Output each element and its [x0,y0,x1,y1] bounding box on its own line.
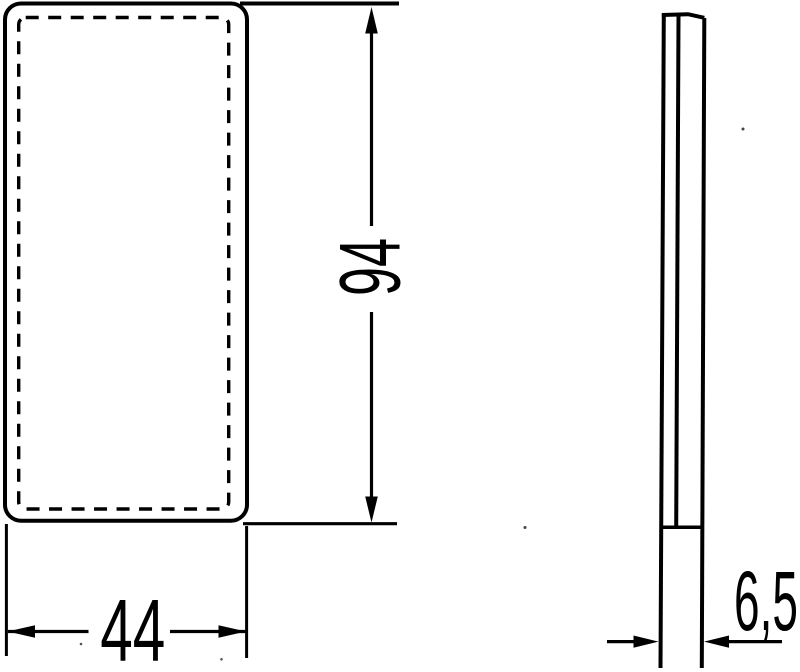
svg-text:44: 44 [100,581,165,672]
svg-text:6,5: 6,5 [734,554,798,648]
svg-text:94: 94 [323,238,419,296]
